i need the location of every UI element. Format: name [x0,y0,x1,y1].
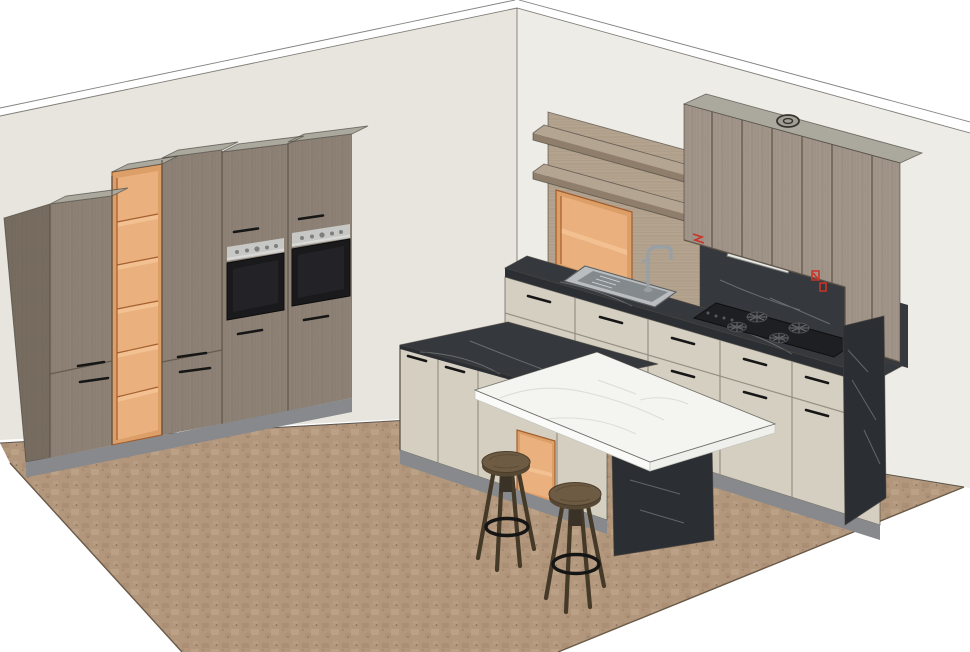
ceiling-vent [777,115,799,127]
burner [770,333,789,343]
burner [728,322,747,332]
run-end-panel [843,316,886,525]
burner [747,312,767,322]
stool-seat [549,483,601,506]
built-in-oven-1 [227,238,284,320]
built-in-oven-2 [292,224,350,306]
orange-shelf-column [112,164,162,445]
kitchen-3d-viewport[interactable] [0,0,970,652]
kitchen-scene [0,0,970,652]
burner [789,323,809,333]
